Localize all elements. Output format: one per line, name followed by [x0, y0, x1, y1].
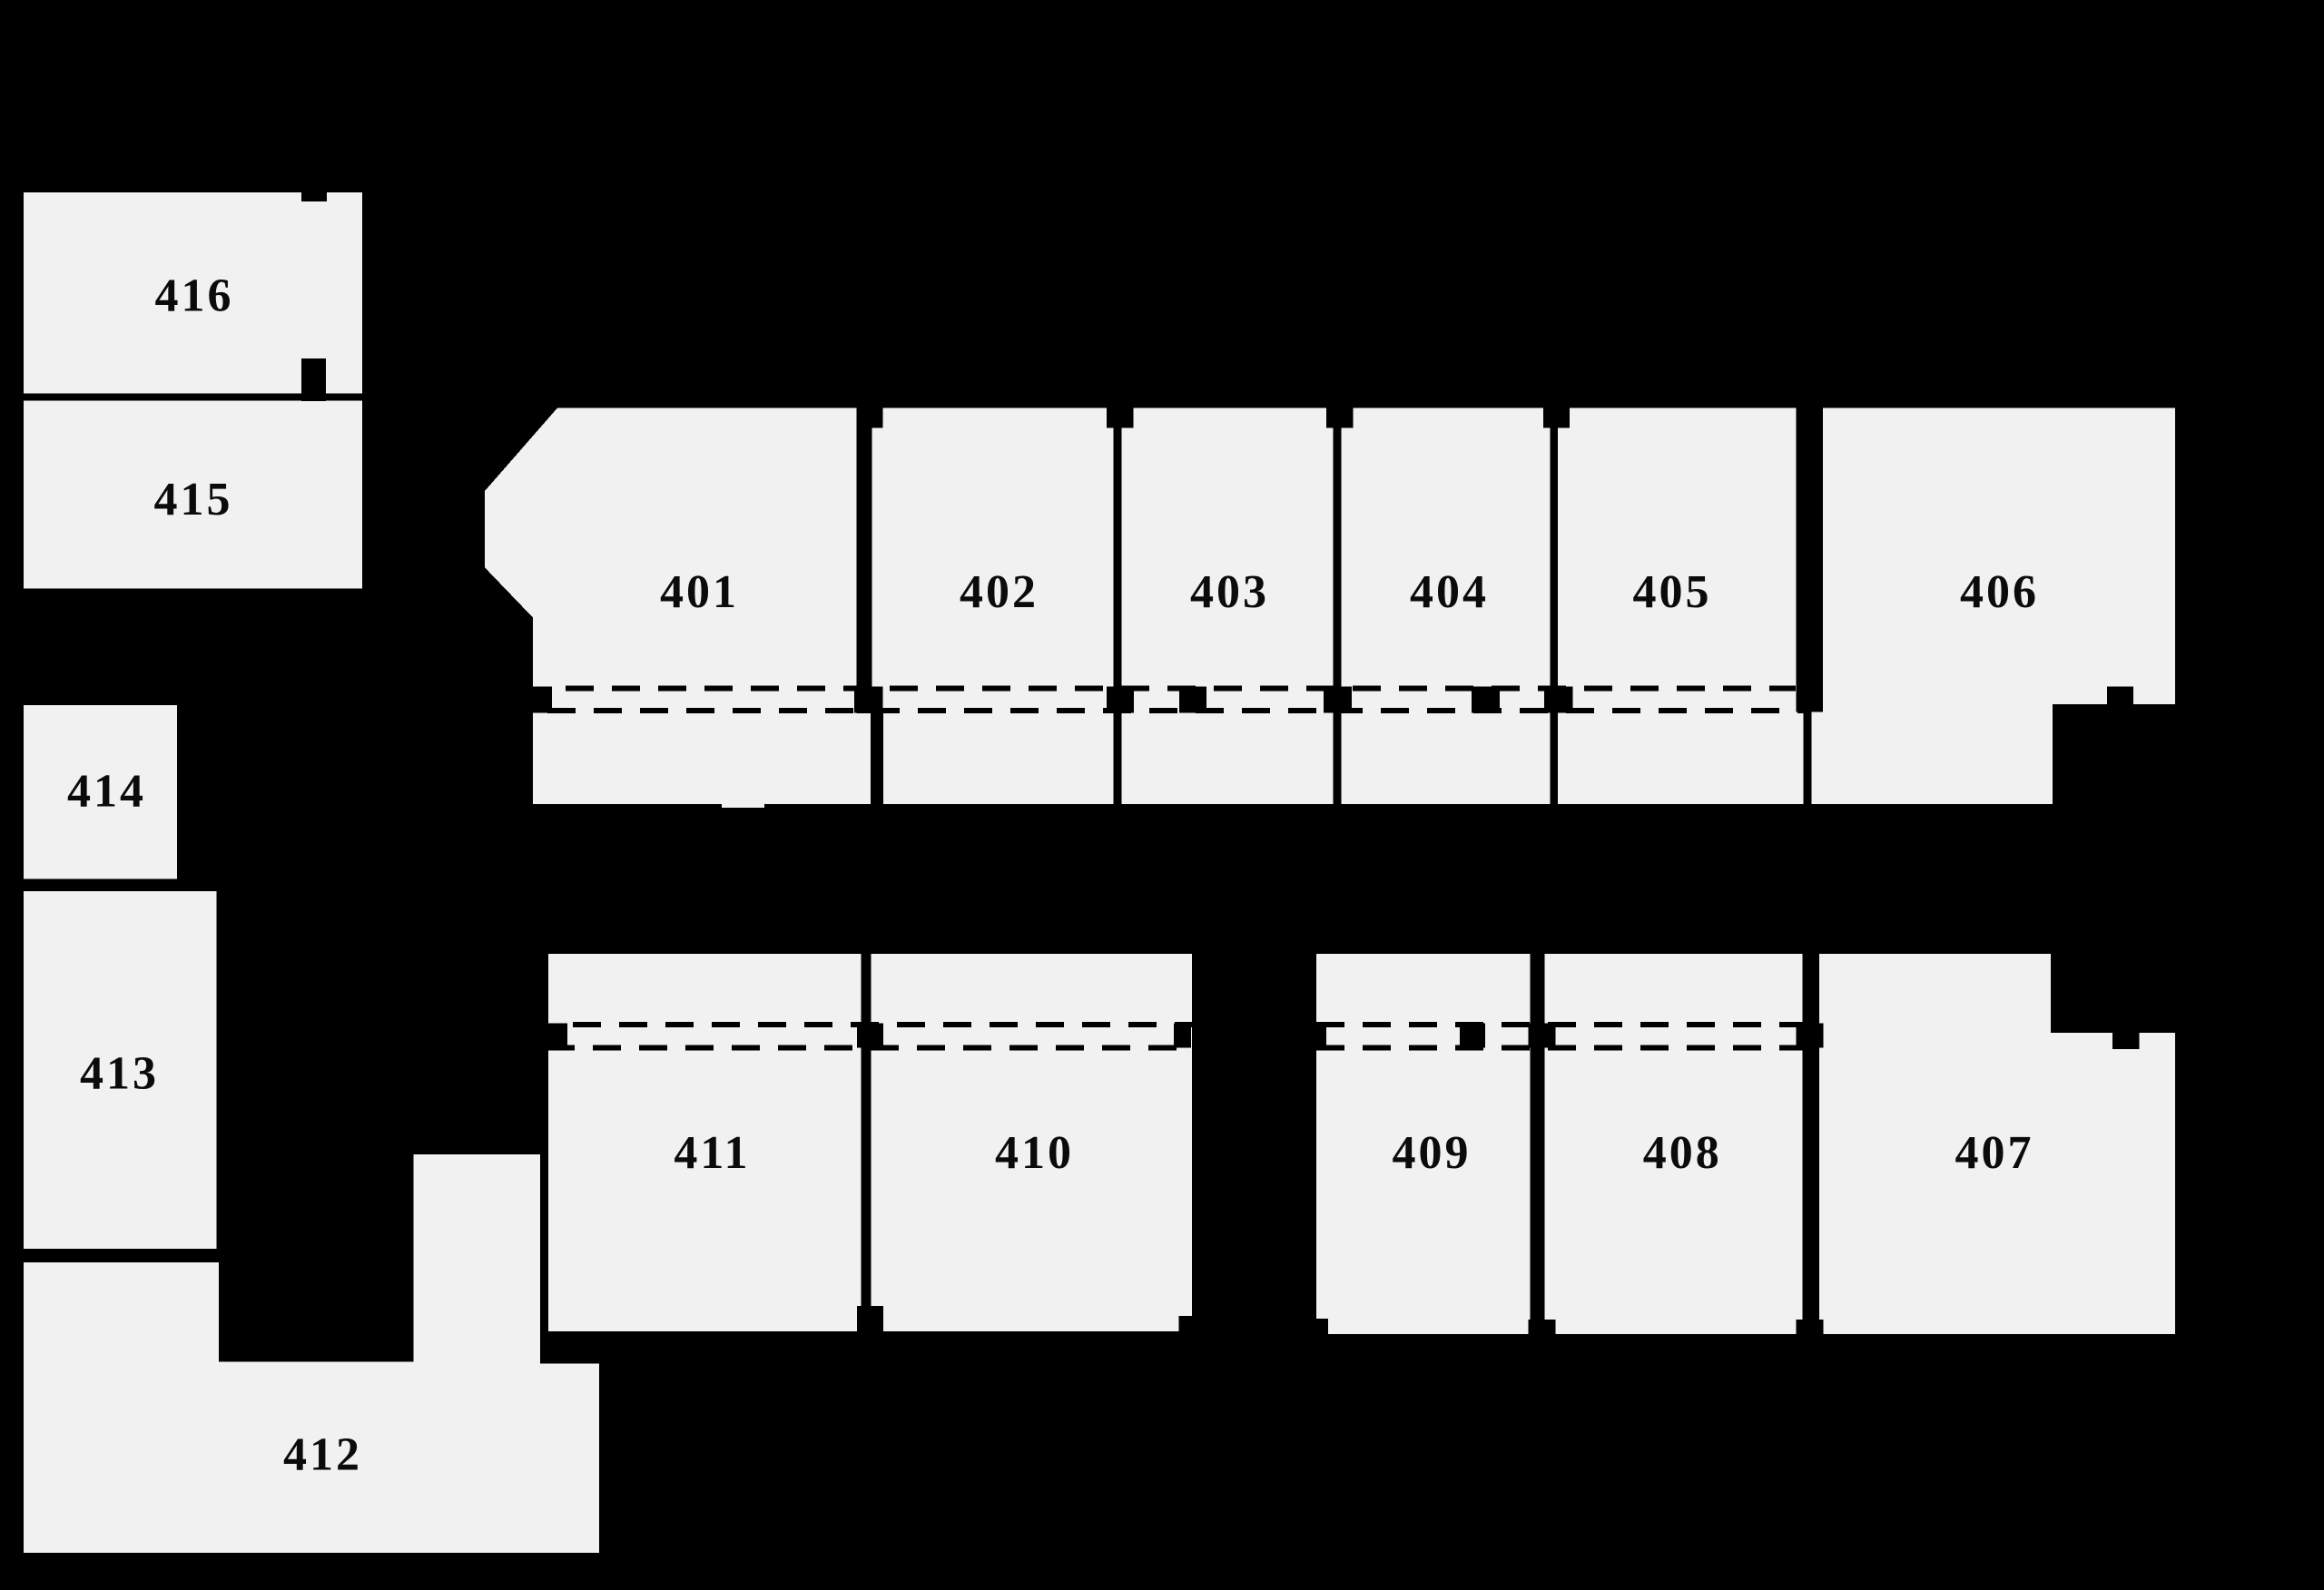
- svg-text:404: 404: [1410, 566, 1489, 618]
- svg-text:409: 409: [1393, 1127, 1472, 1179]
- svg-text:402: 402: [960, 566, 1039, 618]
- svg-text:401: 401: [660, 566, 739, 618]
- svg-text:413: 413: [80, 1048, 159, 1100]
- svg-text:412: 412: [283, 1429, 362, 1481]
- svg-text:408: 408: [1643, 1127, 1722, 1179]
- svg-text:410: 410: [995, 1127, 1074, 1179]
- svg-text:411: 411: [674, 1127, 750, 1179]
- svg-text:403: 403: [1190, 566, 1269, 618]
- svg-text:416: 416: [155, 270, 234, 321]
- svg-text:415: 415: [154, 474, 233, 525]
- svg-text:407: 407: [1955, 1127, 2034, 1179]
- svg-text:406: 406: [1960, 566, 2039, 618]
- svg-text:414: 414: [67, 766, 146, 818]
- svg-text:405: 405: [1633, 566, 1712, 618]
